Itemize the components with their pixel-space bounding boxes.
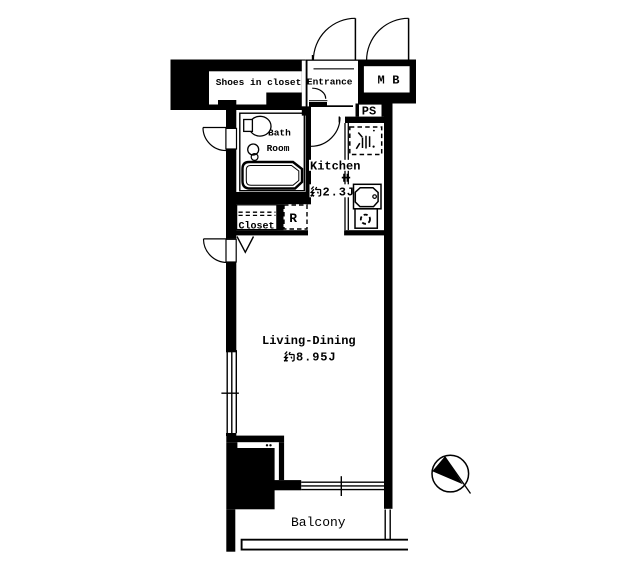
svg-text:PS: PS	[362, 105, 376, 119]
svg-text:8.95J: 8.95J	[296, 351, 337, 365]
svg-text:Shoes in closet: Shoes in closet	[216, 77, 302, 88]
svg-text:Kitchen: Kitchen	[310, 160, 360, 174]
svg-text:Entrance: Entrance	[307, 77, 353, 88]
svg-text:Balcony: Balcony	[291, 515, 346, 530]
svg-text:Room: Room	[267, 143, 290, 154]
svg-text:R: R	[289, 211, 297, 226]
svg-text:Living-Dining: Living-Dining	[262, 334, 356, 348]
svg-text:Bath: Bath	[268, 127, 291, 138]
svg-text:2.3J: 2.3J	[323, 186, 355, 200]
svg-text:MB: MB	[378, 74, 407, 88]
